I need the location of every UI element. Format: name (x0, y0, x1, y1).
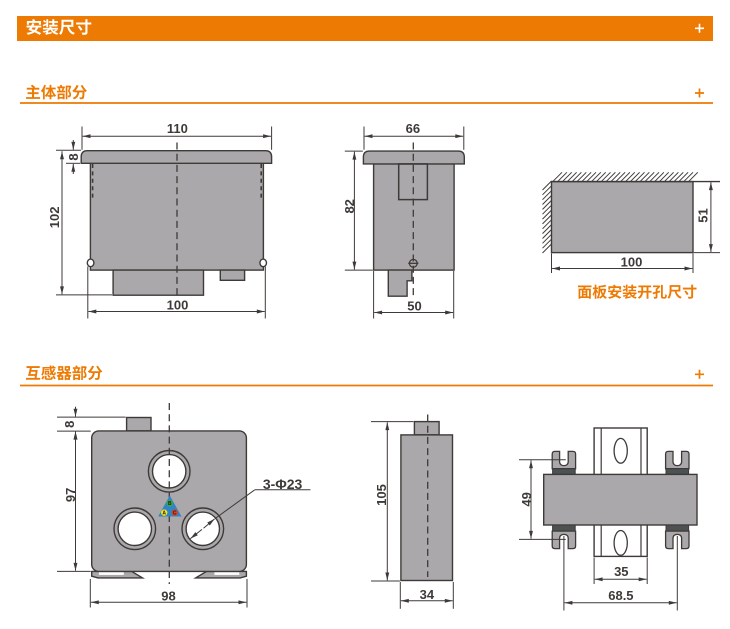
svg-text:66: 66 (406, 121, 420, 136)
svg-text:35: 35 (614, 564, 628, 579)
svg-text:3-Φ23: 3-Φ23 (263, 476, 303, 492)
svg-text:68.5: 68.5 (608, 588, 633, 603)
svg-text:51: 51 (695, 208, 710, 222)
svg-text:8: 8 (66, 153, 81, 160)
svg-text:34: 34 (420, 587, 435, 602)
svg-text:C: C (173, 510, 177, 516)
svg-text:A: A (162, 510, 166, 516)
svg-text:97: 97 (63, 488, 78, 502)
svg-text:49: 49 (519, 492, 534, 506)
svg-text:100: 100 (621, 255, 643, 270)
svg-text:98: 98 (161, 588, 175, 603)
svg-text:B: B (168, 501, 172, 507)
svg-text:105: 105 (374, 484, 389, 506)
svg-text:110: 110 (167, 121, 188, 136)
svg-text:50: 50 (407, 298, 421, 313)
svg-text:102: 102 (47, 207, 62, 229)
svg-text:8: 8 (62, 421, 77, 428)
svg-text:100: 100 (167, 298, 189, 313)
svg-text:82: 82 (342, 199, 357, 213)
